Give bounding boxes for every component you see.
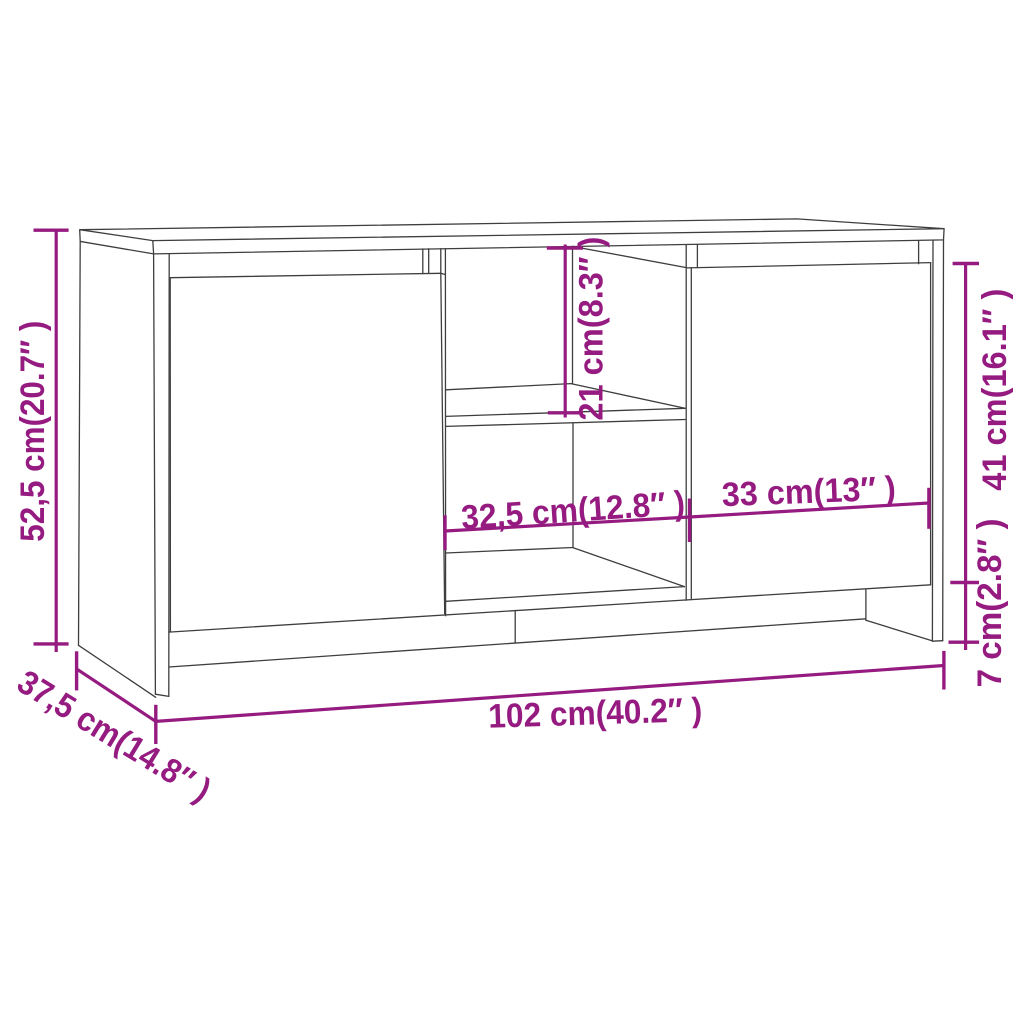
- svg-text:102 cm(40.2″ ): 102 cm(40.2″ ): [488, 691, 703, 736]
- svg-text:32,5 cm(12.8″ ): 32,5 cm(12.8″ ): [460, 484, 686, 537]
- svg-text:21 cm(8.3″ ): 21 cm(8.3″ ): [572, 237, 610, 421]
- svg-text:41 cm(16.1″ ): 41 cm(16.1″ ): [976, 289, 1014, 491]
- svg-text:33 cm(13″ ): 33 cm(13″ ): [721, 470, 896, 515]
- svg-text:7 cm(2.8″ ): 7 cm(2.8″ ): [971, 518, 1009, 687]
- svg-text:52,5 cm(20.7″ ): 52,5 cm(20.7″ ): [14, 321, 52, 542]
- svg-text:37,5 cm(14.8″ ): 37,5 cm(14.8″ ): [11, 663, 218, 810]
